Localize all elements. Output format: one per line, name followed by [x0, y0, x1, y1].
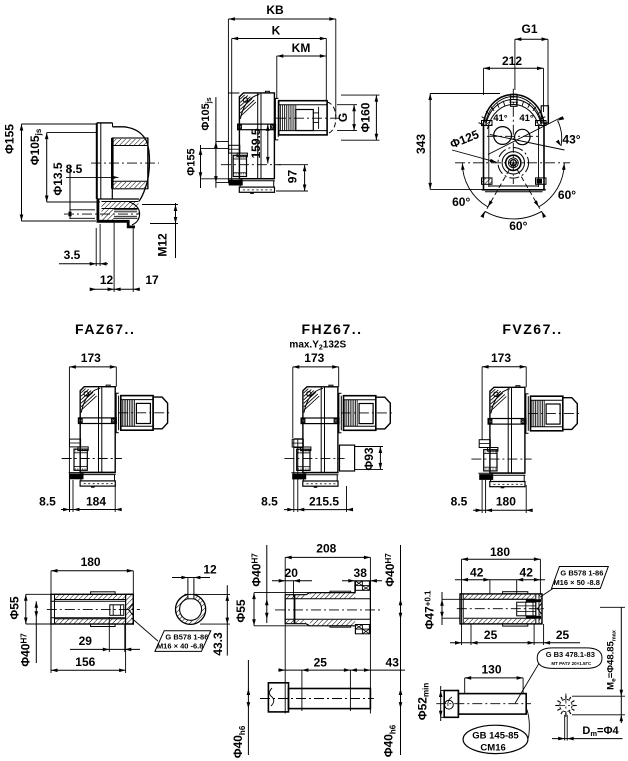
svg-text:FHZ67..: FHZ67.. — [301, 321, 362, 337]
svg-text:215.5: 215.5 — [309, 495, 339, 509]
svg-text:343: 343 — [414, 134, 428, 154]
svg-text:38: 38 — [354, 566, 368, 580]
svg-text:173: 173 — [491, 351, 511, 365]
svg-text:130: 130 — [481, 663, 501, 677]
svg-text:8.5: 8.5 — [66, 162, 83, 176]
svg-text:8.5: 8.5 — [261, 495, 278, 509]
svg-text:G: G — [336, 113, 350, 122]
svg-text:184: 184 — [86, 495, 106, 509]
svg-text:159.5: 159.5 — [249, 128, 263, 158]
svg-text:41°: 41° — [493, 113, 508, 124]
svg-text:25: 25 — [556, 628, 570, 642]
svg-text:8.5: 8.5 — [39, 495, 56, 509]
svg-text:3.5: 3.5 — [64, 248, 81, 262]
svg-text:CM16: CM16 — [480, 742, 505, 753]
svg-text:208: 208 — [316, 542, 336, 556]
svg-text:Φ155: Φ155 — [3, 124, 17, 154]
svg-text:60°: 60° — [452, 195, 470, 209]
svg-text:KM: KM — [292, 41, 311, 55]
svg-text:G B578 1-86: G B578 1-86 — [165, 632, 208, 641]
svg-text:17: 17 — [145, 273, 159, 287]
svg-text:M16 × 40 -6.8: M16 × 40 -6.8 — [157, 641, 204, 650]
svg-text:max.Y2132S: max.Y2132S — [289, 340, 346, 352]
svg-text:43.3: 43.3 — [211, 632, 225, 656]
svg-text:25: 25 — [314, 655, 328, 669]
svg-text:M16 × 50 -8.8: M16 × 50 -8.8 — [553, 578, 600, 587]
svg-text:43°: 43° — [562, 133, 580, 147]
svg-text:Φ55: Φ55 — [7, 596, 21, 620]
svg-text:G B578 1-86: G B578 1-86 — [560, 568, 603, 577]
svg-text:20: 20 — [285, 566, 299, 580]
svg-text:Dm=Φ4: Dm=Φ4 — [582, 725, 619, 738]
svg-text:156: 156 — [75, 655, 95, 669]
svg-text:212: 212 — [502, 54, 522, 68]
svg-text:Φ13.5: Φ13.5 — [51, 162, 65, 196]
svg-text:60°: 60° — [509, 219, 527, 233]
svg-text:42: 42 — [520, 566, 534, 580]
svg-text:Φ55: Φ55 — [234, 599, 248, 623]
svg-text:МТ РАТУ 20×1.5ГС: МТ РАТУ 20×1.5ГС — [551, 661, 592, 666]
svg-text:GB 145-85: GB 145-85 — [472, 731, 519, 742]
svg-text:Φ160: Φ160 — [358, 102, 372, 132]
svg-text:41°: 41° — [519, 113, 534, 124]
svg-text:42: 42 — [470, 566, 484, 580]
svg-text:97: 97 — [286, 170, 300, 184]
svg-text:43: 43 — [386, 655, 400, 669]
svg-text:G B3 478.1-83: G B3 478.1-83 — [546, 650, 595, 659]
svg-text:60°: 60° — [558, 188, 576, 202]
svg-text:173: 173 — [304, 351, 324, 365]
svg-text:G1: G1 — [521, 22, 537, 36]
svg-text:Φ93: Φ93 — [362, 447, 376, 471]
svg-text:180: 180 — [490, 545, 510, 559]
svg-text:Φ155: Φ155 — [186, 148, 198, 175]
svg-text:12: 12 — [203, 563, 217, 577]
svg-text:KB: KB — [266, 3, 284, 17]
svg-text:K: K — [272, 23, 281, 37]
svg-text:180: 180 — [81, 555, 101, 569]
svg-text:FAZ67..: FAZ67.. — [75, 321, 135, 337]
svg-text:29: 29 — [79, 634, 93, 648]
svg-text:173: 173 — [81, 351, 101, 365]
svg-text:25: 25 — [484, 628, 498, 642]
svg-text:FVZ67..: FVZ67.. — [502, 321, 562, 337]
svg-text:12: 12 — [100, 273, 114, 287]
svg-text:180: 180 — [496, 495, 516, 509]
svg-text:M12: M12 — [156, 233, 170, 257]
svg-text:8.5: 8.5 — [451, 495, 468, 509]
